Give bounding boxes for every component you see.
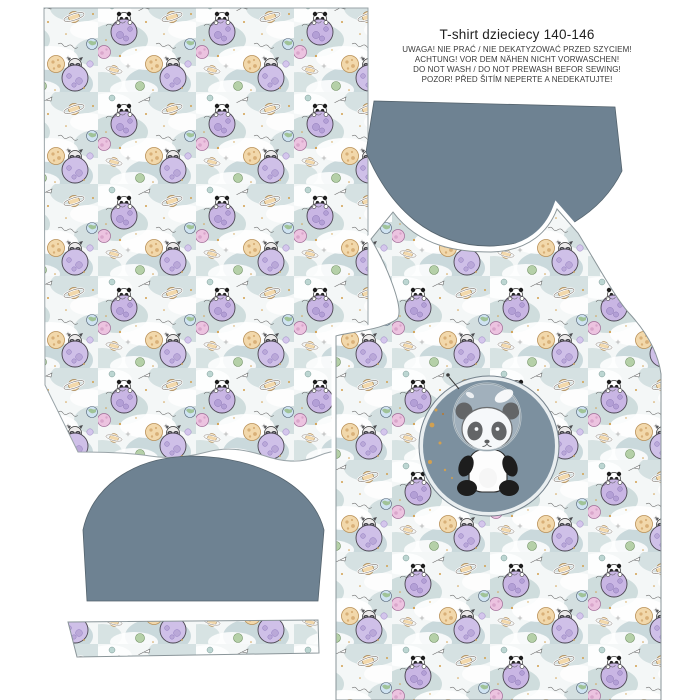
care-line-pl: UWAGA! NIE PRAĆ / NIE DEKATYZOWAĆ PRZED … bbox=[337, 45, 697, 55]
care-instructions-block: T-shirt dzieciecy 140-146 UWAGA! NIE PRA… bbox=[337, 27, 697, 85]
care-line-cz: POZOR! PŘED ŠITÍM NEPERTE A NEDEKATUJTE! bbox=[337, 75, 697, 85]
product-title: T-shirt dzieciecy 140-146 bbox=[337, 27, 697, 42]
neckband-strip bbox=[68, 620, 319, 657]
printed-fabric-panel bbox=[44, 8, 368, 461]
care-line-de: ACHTUNG! VOR DEM NÄHEN NICHT VORWASCHEN! bbox=[337, 55, 697, 65]
fabric-panel-mockup: T-shirt dzieciecy 140-146 UWAGA! NIE PRA… bbox=[0, 0, 700, 700]
pattern-layout-canvas bbox=[0, 0, 700, 700]
sleeve-piece-bottom bbox=[83, 456, 324, 601]
care-line-en: DO NOT WASH / DO NOT PREWASH BEFOR SEWIN… bbox=[337, 65, 697, 75]
